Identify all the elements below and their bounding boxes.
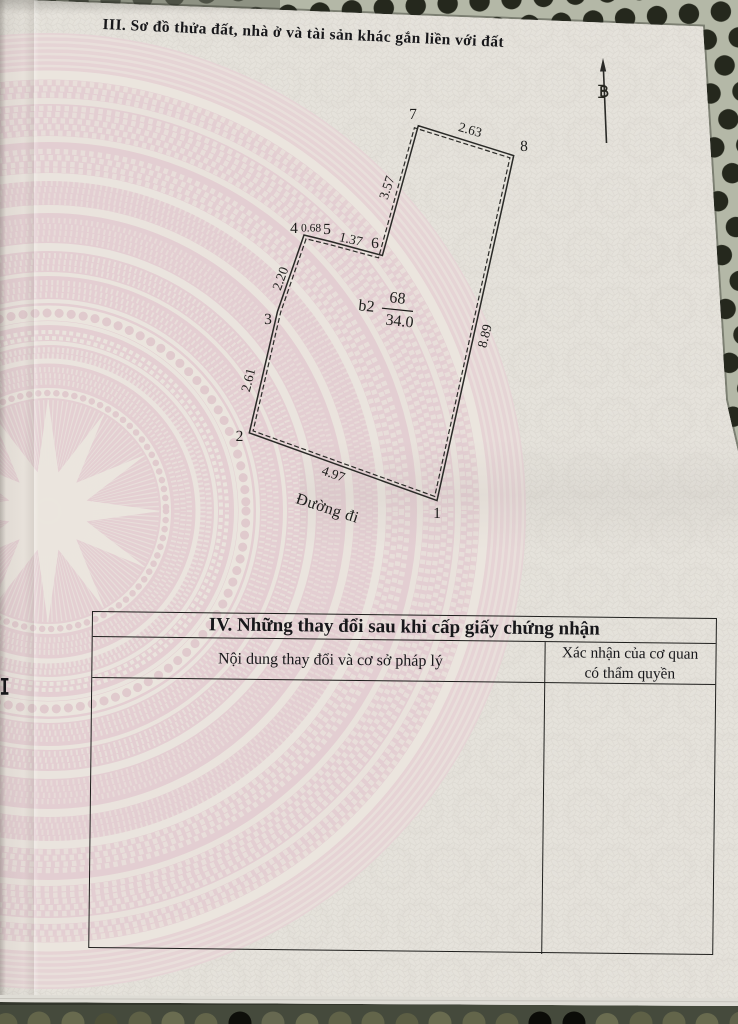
svg-text:7: 7 bbox=[409, 106, 417, 123]
svg-text:2.61: 2.61 bbox=[238, 367, 258, 394]
svg-text:3.57: 3.57 bbox=[376, 174, 398, 201]
svg-text:b2: b2 bbox=[358, 297, 376, 316]
svg-text:Đường đi: Đường đi bbox=[294, 491, 361, 527]
svg-text:2.63: 2.63 bbox=[457, 119, 484, 140]
svg-text:8.89: 8.89 bbox=[474, 322, 494, 349]
svg-text:1: 1 bbox=[433, 505, 441, 522]
svg-text:2: 2 bbox=[236, 428, 244, 445]
svg-text:1.37: 1.37 bbox=[338, 229, 365, 249]
svg-text:34.0: 34.0 bbox=[385, 312, 415, 332]
svg-text:3: 3 bbox=[264, 311, 272, 328]
svg-text:8: 8 bbox=[520, 138, 528, 155]
svg-text:5: 5 bbox=[323, 221, 331, 238]
svg-text:0.68: 0.68 bbox=[301, 223, 321, 235]
svg-text:6: 6 bbox=[371, 235, 379, 252]
svg-text:68: 68 bbox=[389, 289, 407, 308]
svg-text:4: 4 bbox=[290, 220, 298, 237]
svg-text:2.20: 2.20 bbox=[269, 265, 291, 293]
